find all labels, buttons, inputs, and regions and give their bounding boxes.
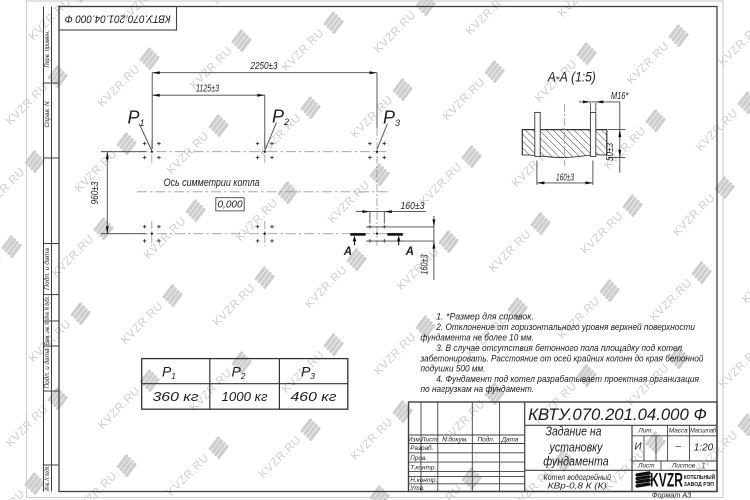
svg-text:2. Отклонение от горизонтально: 2. Отклонение от горизонтального уровня … xyxy=(435,322,695,332)
svg-text:Пров.: Пров. xyxy=(410,455,427,462)
svg-text:–: – xyxy=(675,441,682,452)
svg-text:Листов: Листов xyxy=(671,463,696,470)
svg-text:КВТУ.070.201.04.000 Ф: КВТУ.070.201.04.000 Ф xyxy=(528,406,707,424)
svg-text:Масса: Масса xyxy=(669,428,688,435)
svg-text:ЗАВОД РЭП: ЗАВОД РЭП xyxy=(684,482,714,488)
svg-text:360 кг: 360 кг xyxy=(153,390,199,404)
svg-text:установку: установку xyxy=(549,441,603,455)
svg-text:3. В случае отсутствия бетонно: 3. В случае отсутствия бетонного пола пл… xyxy=(436,343,682,353)
svg-text:Дата: Дата xyxy=(501,436,519,443)
svg-text:фундамента не более 10 мм.: фундамента не более 10 мм. xyxy=(421,332,535,342)
svg-text:Масштаб: Масштаб xyxy=(690,427,716,435)
svg-text:1:20: 1:20 xyxy=(694,442,714,453)
svg-text:160±3: 160±3 xyxy=(556,172,574,183)
svg-text:Подп. и дата: Подп. и дата xyxy=(43,348,51,388)
svg-text:2250±3: 2250±3 xyxy=(250,61,278,72)
svg-text:Подп.: Подп. xyxy=(477,435,494,443)
svg-text:Подп. и дата: Подп. и дата xyxy=(43,248,51,290)
svg-text:Ось симметрии котла: Ось симметрии котла xyxy=(164,177,260,189)
svg-text:Лит.: Лит. xyxy=(637,428,653,435)
svg-text:Инв. N подл.: Инв. N подл. xyxy=(43,466,51,491)
svg-text:0,000: 0,000 xyxy=(217,200,242,211)
svg-text:фундамента: фундамента xyxy=(543,455,609,469)
svg-text:Разраб.: Разраб. xyxy=(410,444,433,452)
svg-text:KVZR.RU: KVZR.RU xyxy=(0,251,5,298)
svg-text:1125±3: 1125±3 xyxy=(196,84,219,95)
svg-text:Лист: Лист xyxy=(420,436,438,443)
svg-text:А: А xyxy=(343,246,352,258)
svg-text:Инв. N дубл.: Инв. N дубл. xyxy=(43,296,51,320)
svg-text:Изм.: Изм. xyxy=(408,436,422,443)
svg-text:Справ. N: Справ. N xyxy=(44,101,51,127)
svg-text:KVZR.RU: KVZR.RU xyxy=(740,259,750,306)
svg-text:1000 кг: 1000 кг xyxy=(222,390,268,404)
svg-text:1. *Размер для справок.: 1. *Размер для справок. xyxy=(436,312,534,322)
svg-text:960±3: 960±3 xyxy=(90,181,101,204)
svg-text:KVZR.RU: KVZR.RU xyxy=(0,166,28,213)
svg-text:Н.контр.: Н.контр. xyxy=(410,477,437,484)
svg-text:1: 1 xyxy=(702,463,706,470)
svg-text:50±3: 50±3 xyxy=(605,143,616,161)
svg-text:Т.контр.: Т.контр. xyxy=(410,464,436,471)
svg-text:KVZR: KVZR xyxy=(650,470,683,492)
svg-text:160±3: 160±3 xyxy=(420,254,431,274)
svg-text:КВТУ.070.201.04.000 Ф: КВТУ.070.201.04.000 Ф xyxy=(65,13,171,25)
svg-text:КВр-0,8 К (К): КВр-0,8 К (К) xyxy=(548,480,607,490)
svg-text:160±3: 160±3 xyxy=(401,201,425,212)
svg-text:по нагрузкам на фундамент.: по нагрузкам на фундамент. xyxy=(421,384,535,394)
svg-text:А-А (1:5): А-А (1:5) xyxy=(547,70,596,85)
svg-text:KVZR.RU: KVZR.RU xyxy=(0,488,28,500)
svg-text:А: А xyxy=(405,246,414,258)
svg-text:N докум.: N докум. xyxy=(442,435,468,443)
svg-text:КОТЕЛЬНЫЙ: КОТЕЛЬНЫЙ xyxy=(684,473,715,481)
svg-text:Формат А3: Формат А3 xyxy=(652,490,691,499)
svg-text:М16*: М16* xyxy=(611,91,629,102)
svg-text:Взам. инв. N: Взам. инв. N xyxy=(44,322,51,345)
svg-text:Утв.: Утв. xyxy=(409,485,425,492)
svg-text:забетонировать. Расстояние от: забетонировать. Расстояние от осей крайн… xyxy=(420,353,704,363)
svg-text:460 кг: 460 кг xyxy=(291,390,337,404)
svg-text:Перв. примен.: Перв. примен. xyxy=(44,31,51,68)
svg-text:И: И xyxy=(634,442,642,453)
svg-text:подушки 500 мм.: подушки 500 мм. xyxy=(421,364,486,374)
svg-text:Задание на: Задание на xyxy=(546,425,602,439)
svg-text:Лист: Лист xyxy=(637,463,655,470)
svg-text:4. Фундамент под котел разраба: 4. Фундамент под котел разрабатывает про… xyxy=(436,374,699,384)
